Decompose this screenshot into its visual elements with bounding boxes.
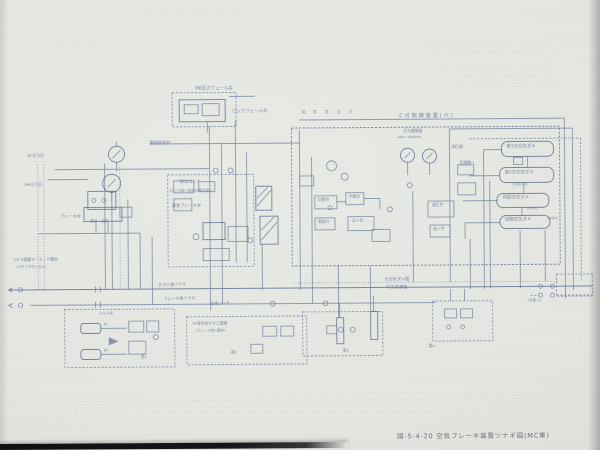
- reservoir-label: 第2元空気ダメ: [505, 171, 534, 176]
- control-unit-region-label: C付制御装置(六): [399, 112, 454, 119]
- annotation: (カギフタ付トスル): [16, 266, 46, 270]
- annotation: M'車空気オサエ管理: [193, 322, 228, 326]
- annotation: ユルメ弁: [99, 312, 113, 316]
- annotation: 制: [325, 111, 328, 115]
- annotation: 締切コック: [180, 180, 201, 185]
- annotation: (150ℓ): [527, 207, 537, 211]
- annotation: 電磁弁: [318, 220, 329, 224]
- annotation: ブレーキ弁: [60, 215, 81, 220]
- annotation: コチラ側妻ホースノミ関係: [12, 258, 57, 262]
- annotation: BC圧力計: [27, 154, 44, 158]
- annotation: MR圧力フェール弁: [195, 87, 233, 92]
- handwritten-annotations: MR圧力フェール弁ロックフェール弁電磁給排弁締切コックロック時ハ常用切替弁扱ヒ保…: [0, 0, 600, 450]
- annotation: 単弁・自弁: [90, 219, 109, 223]
- annotation: 440〜490kPa: [397, 136, 421, 140]
- annotation: 調圧器: [451, 145, 462, 149]
- annotation: (100ℓ): [548, 217, 558, 221]
- pipe-label: 元ダメ管ツナギ: [158, 282, 186, 288]
- annotation: ロック時ハ常用切替弁扱ヒ: [170, 190, 213, 194]
- annotation: 中継弁: [349, 195, 360, 199]
- diagram-area: MR圧力フェール弁ロックフェール弁電磁給排弁締切コックロック時ハ常用切替弁扱ヒ保…: [0, 0, 600, 450]
- annotation: (240ℓ×2): [513, 183, 528, 187]
- annotation: 第3: [343, 349, 349, 353]
- annotation: (次車ヘ): [528, 299, 542, 303]
- annotation: 調圧弁: [432, 203, 443, 207]
- annotation: 留置コック: [210, 301, 229, 306]
- pipe-label: ブレーキ管ツナギ: [163, 296, 195, 302]
- annotation: 逃シ弁: [433, 227, 444, 231]
- photo-of-diagram-page: MR圧力フェール弁ロックフェール弁電磁給排弁締切コックロック時ハ常用切替弁扱ヒ保…: [0, 0, 600, 450]
- reservoir-label: 第1元空気ダメ: [506, 145, 535, 150]
- annotation: (ブレーキ時ニ動作): [196, 330, 226, 334]
- annotation: BC: [104, 349, 109, 353]
- annotation: 第1: [141, 355, 147, 359]
- figure-caption: 図-5-4-20 空気ブレーキ装置ツナギ図(MC車): [397, 430, 550, 441]
- annotation: 込メ弁: [352, 219, 363, 223]
- annotation: MR圧力計: [25, 183, 42, 187]
- annotation: 電磁給排弁: [149, 141, 170, 146]
- pipe-label: 行先連通管: [386, 285, 407, 290]
- annotation: 排: [313, 111, 316, 115]
- annotation: 圧力開閉器: [403, 129, 422, 133]
- pipe-label: 元空気ダメ管: [384, 277, 409, 282]
- annotation: ロックフェール弁: [232, 110, 267, 115]
- annotation: 給: [302, 111, 305, 115]
- annotation: BC: [104, 323, 109, 327]
- annotation: 保安ブレーキ弁: [172, 204, 201, 209]
- annotation: 切替弁: [318, 198, 329, 202]
- annotation: 第2: [231, 350, 237, 354]
- reservoir-label: 制御空気ダメ: [505, 218, 531, 223]
- annotation: 圧縮機ヘ: [460, 161, 475, 165]
- annotation: 第4: [429, 344, 435, 348]
- annotation: 込: [337, 111, 340, 115]
- annotation: 圧: [349, 111, 352, 115]
- reservoir-label: 供給空気ダメ: [503, 196, 529, 201]
